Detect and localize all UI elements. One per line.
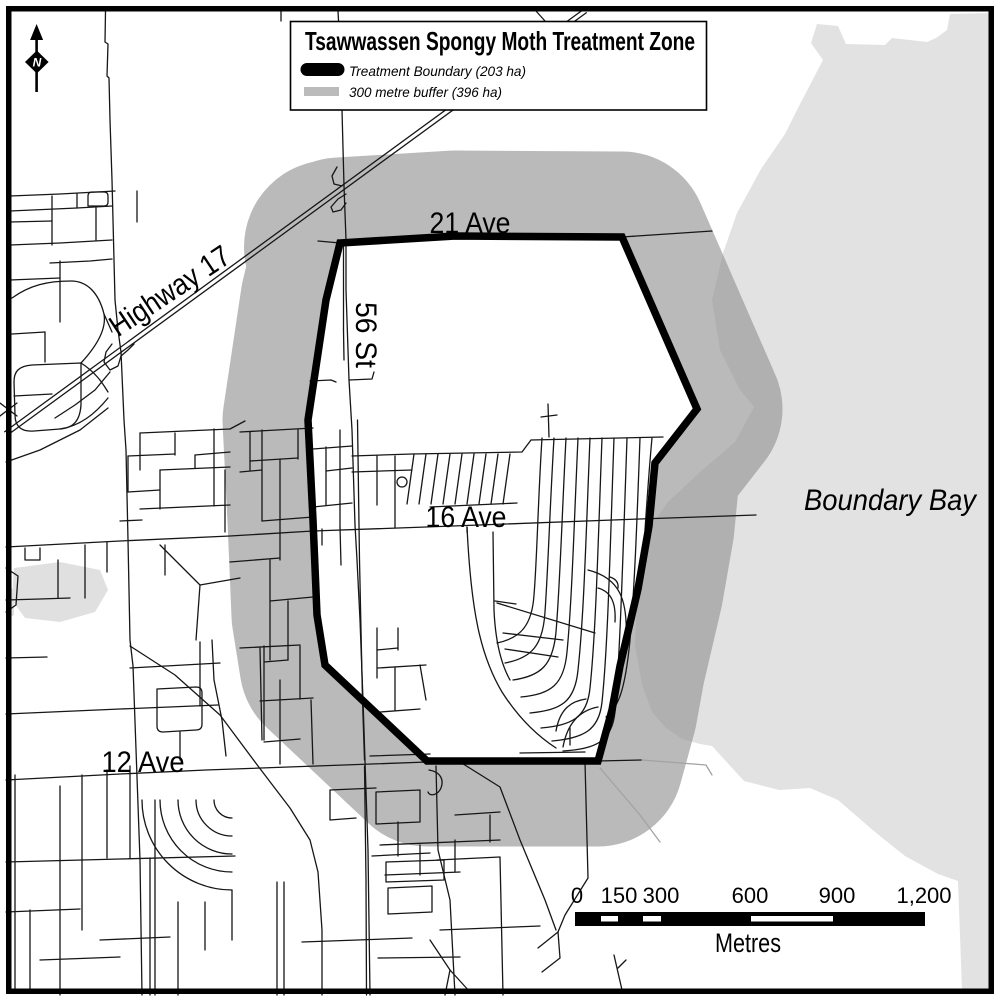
svg-text:16 Ave: 16 Ave xyxy=(426,501,507,534)
svg-text:12 Ave: 12 Ave xyxy=(102,746,185,779)
svg-text:300 metre buffer (396 ha): 300 metre buffer (396 ha) xyxy=(349,84,502,100)
svg-text:Metres: Metres xyxy=(715,928,781,958)
svg-text:1,200: 1,200 xyxy=(896,883,951,908)
svg-text:N: N xyxy=(33,56,42,70)
svg-text:21 Ave: 21 Ave xyxy=(430,207,511,240)
svg-text:600: 600 xyxy=(732,883,769,908)
svg-text:56 St: 56 St xyxy=(349,302,382,369)
svg-text:Tsawwassen Spongy Moth Treatme: Tsawwassen Spongy Moth Treatment Zone xyxy=(305,26,695,56)
svg-text:150: 150 xyxy=(601,883,638,908)
svg-text:Boundary Bay: Boundary Bay xyxy=(804,484,978,517)
svg-text:Treatment Boundary (203 ha): Treatment Boundary (203 ha) xyxy=(349,63,526,79)
svg-text:900: 900 xyxy=(819,883,856,908)
svg-text:300: 300 xyxy=(643,883,680,908)
svg-text:0: 0 xyxy=(571,883,583,908)
